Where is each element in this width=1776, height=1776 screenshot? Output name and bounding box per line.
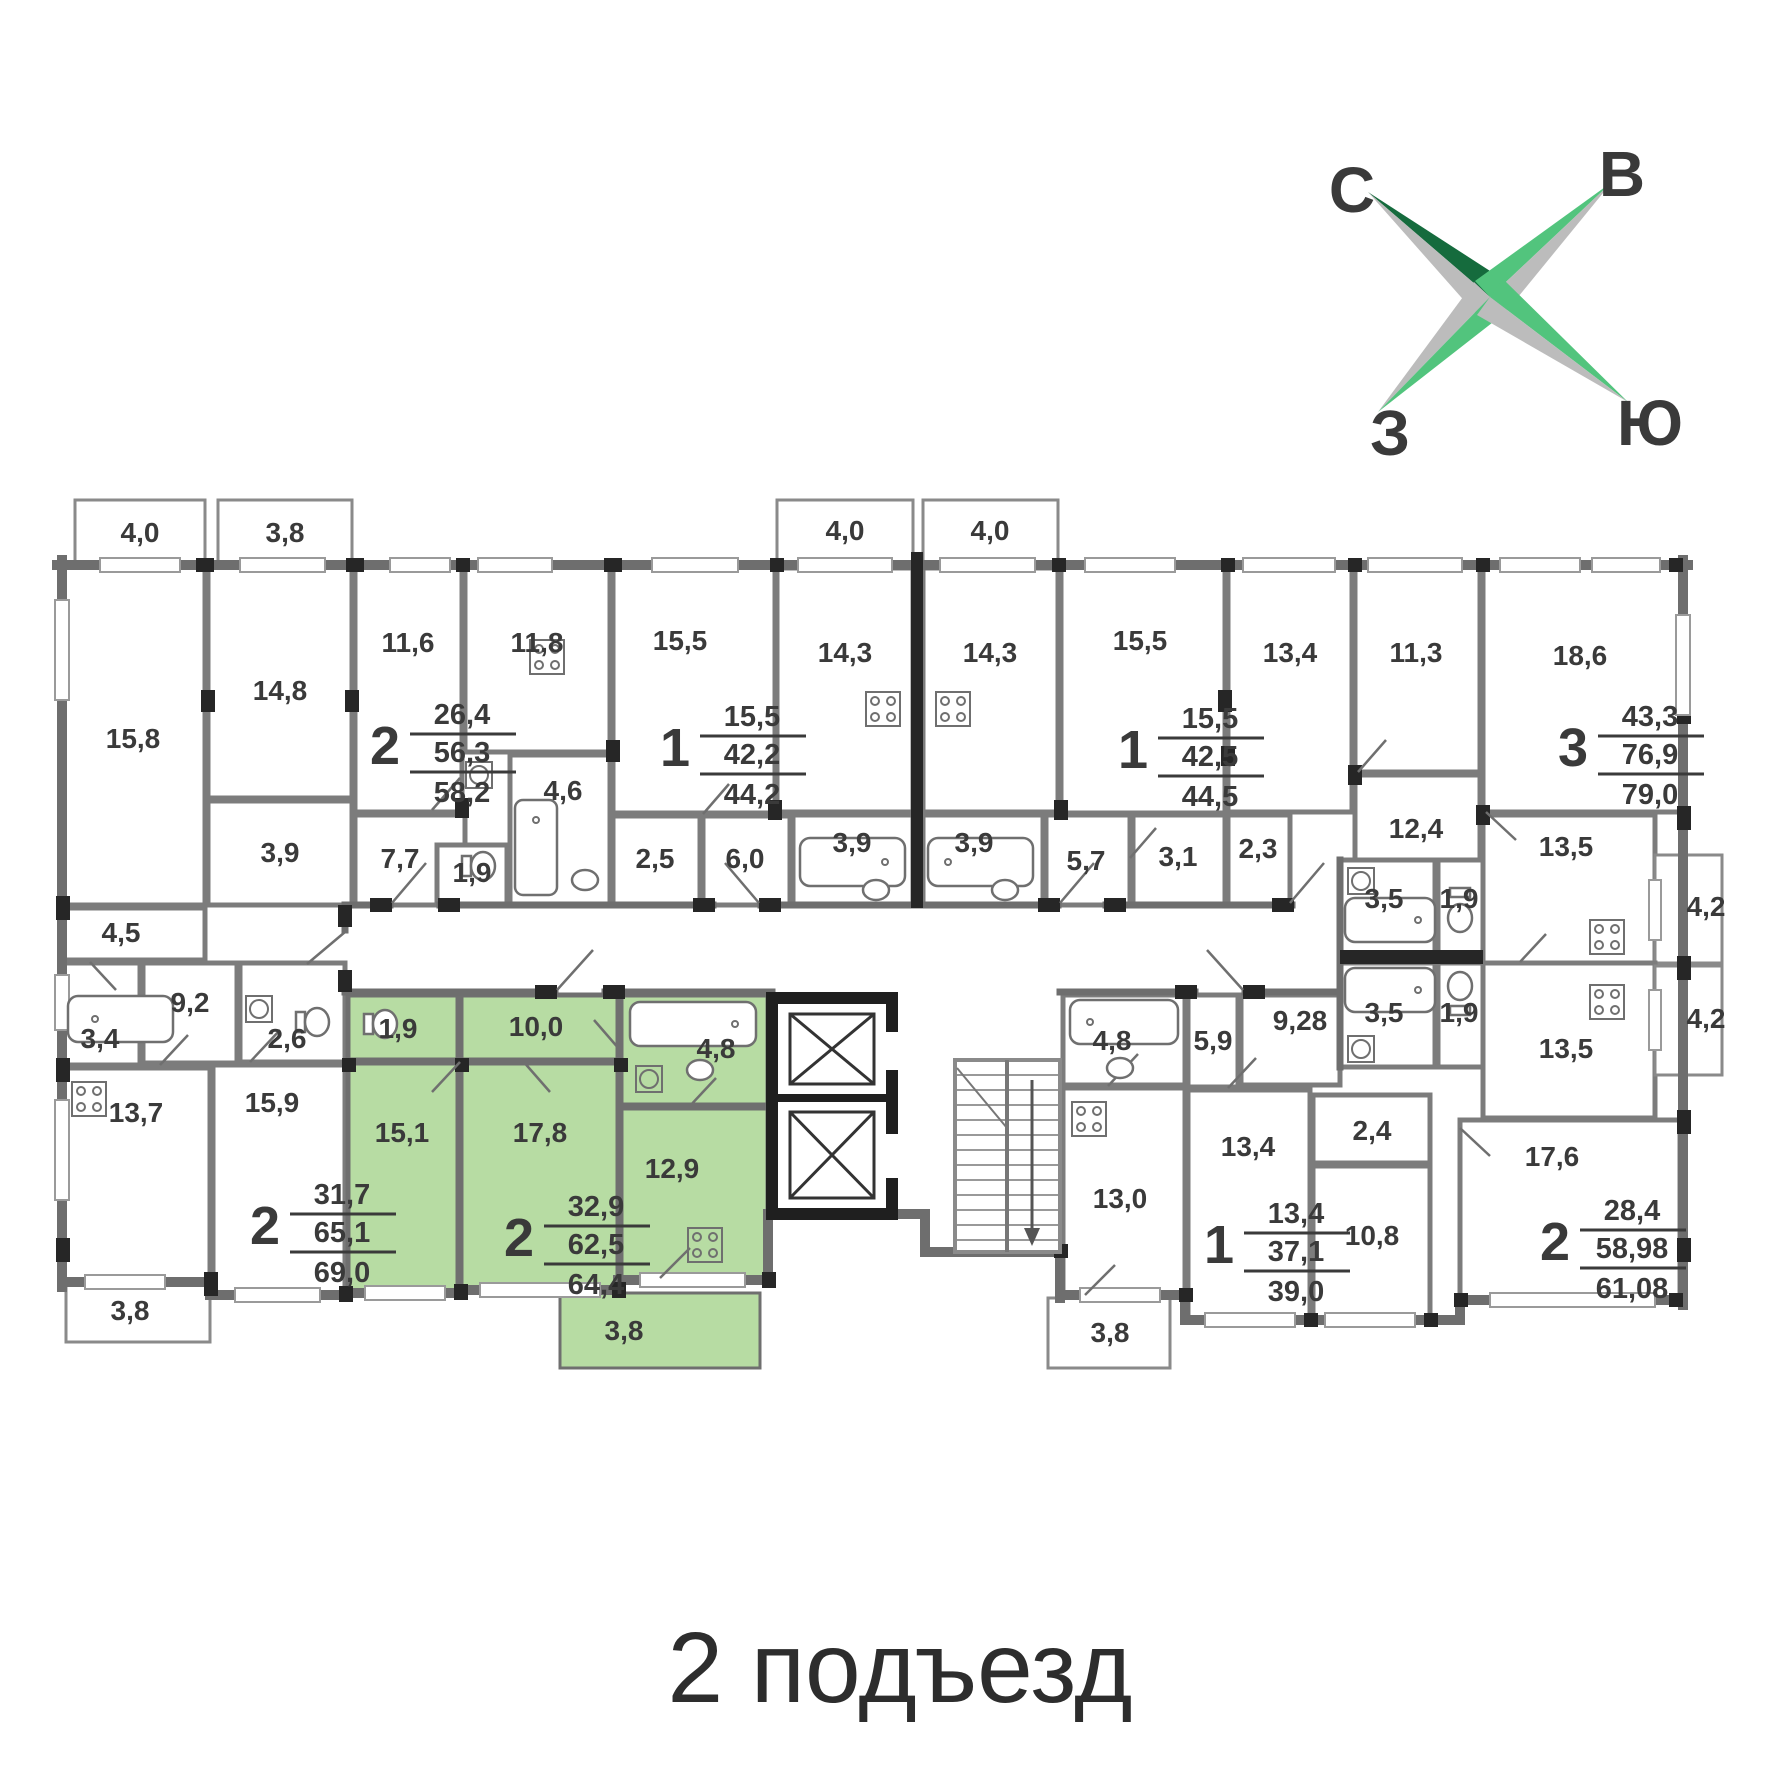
room-area-label: 2,6 bbox=[268, 1023, 307, 1054]
room-area-label: 5,7 bbox=[1067, 845, 1106, 876]
rooms-layer bbox=[62, 500, 1722, 1368]
elevator-block bbox=[772, 998, 900, 1214]
room-area-label: 15,5 bbox=[653, 625, 708, 656]
room-area-label: 17,6 bbox=[1525, 1141, 1580, 1172]
room-area-label: 4,2 bbox=[1687, 1003, 1726, 1034]
apartment-total-area-with-balcony: 61,08 bbox=[1596, 1273, 1669, 1305]
apartment-rooms-count: 1 bbox=[660, 718, 690, 778]
plan-title: 2 подъезд bbox=[667, 1612, 1132, 1724]
room-area-label: 13,5 bbox=[1539, 831, 1594, 862]
elevator-shaft-icon bbox=[790, 1014, 874, 1084]
room-area-label: 9,28 bbox=[1273, 1005, 1328, 1036]
apartment-total-area-with-balcony: 69,0 bbox=[314, 1257, 370, 1289]
room-area-label: 3,9 bbox=[955, 827, 994, 858]
room-area-label: 4,2 bbox=[1687, 891, 1726, 922]
room-area-label: 1,9 bbox=[379, 1013, 418, 1044]
room-area-label: 1,9 bbox=[1440, 883, 1479, 914]
sink-icon bbox=[863, 880, 889, 900]
compass-arm-west bbox=[1378, 282, 1490, 412]
sink-icon bbox=[1107, 1058, 1133, 1078]
room-area-label: 4,0 bbox=[826, 515, 865, 546]
room-area-label: 7,7 bbox=[381, 843, 420, 874]
room-area-label: 6,0 bbox=[726, 843, 765, 874]
apartment-total-area: 56,3 bbox=[434, 737, 490, 769]
compass-east-label: В bbox=[1599, 138, 1645, 210]
room-area-label: 17,8 bbox=[513, 1117, 568, 1148]
room-area-label: 3,8 bbox=[1091, 1317, 1130, 1348]
room-area-label: 15,8 bbox=[106, 723, 161, 754]
room-area-label: 15,1 bbox=[375, 1117, 430, 1148]
room-area-label: 10,0 bbox=[509, 1011, 564, 1042]
apartment-rooms-count: 2 bbox=[250, 1196, 280, 1256]
room-area-label: 4,0 bbox=[971, 515, 1010, 546]
room-area-label: 10,8 bbox=[1345, 1220, 1400, 1251]
room-area-label: 14,8 bbox=[253, 675, 308, 706]
bathtub-icon bbox=[630, 1002, 756, 1046]
elevator-shaft-icon bbox=[790, 1112, 874, 1198]
apartment-total-area: 42,2 bbox=[724, 739, 780, 771]
room-area-label: 1,9 bbox=[453, 857, 492, 888]
room-area-label: 15,9 bbox=[245, 1087, 300, 1118]
apartment-living-area: 31,7 bbox=[314, 1179, 370, 1211]
apartment-rooms-count: 1 bbox=[1204, 1215, 1234, 1275]
apartment-total-area-with-balcony: 39,0 bbox=[1268, 1276, 1324, 1308]
room-area-label: 3,1 bbox=[1159, 841, 1198, 872]
room-area-label: 2,4 bbox=[1353, 1115, 1392, 1146]
room-area-label: 3,8 bbox=[605, 1315, 644, 1346]
compass-north-label: С bbox=[1329, 154, 1375, 226]
room-area-label: 2,3 bbox=[1239, 833, 1278, 864]
apartment-total-area: 42,5 bbox=[1182, 741, 1238, 773]
bathtub-icon bbox=[515, 800, 557, 895]
floor-plan-page: 4,03,815,814,83,911,611,87,71,94,615,52,… bbox=[0, 0, 1776, 1776]
apartment-living-area: 32,9 bbox=[568, 1191, 624, 1223]
apartment-living-area: 13,4 bbox=[1268, 1198, 1324, 1230]
room-area-label: 12,4 bbox=[1389, 813, 1444, 844]
room-area-label: 11,8 bbox=[511, 627, 564, 658]
room-area-label: 4,8 bbox=[1093, 1025, 1132, 1056]
room-area-label: 3,8 bbox=[266, 517, 305, 548]
apartment-total-area: 76,9 bbox=[1622, 739, 1678, 771]
room-area-label: 18,6 bbox=[1553, 640, 1608, 671]
apartment-total-area-with-balcony: 79,0 bbox=[1622, 779, 1678, 811]
apartment-rooms-count: 2 bbox=[1540, 1212, 1570, 1272]
apartment-total-area: 37,1 bbox=[1268, 1236, 1324, 1268]
apartment-living-area: 15,5 bbox=[724, 701, 780, 733]
room-area-label: 4,6 bbox=[544, 775, 583, 806]
apartment-total-area: 65,1 bbox=[314, 1217, 370, 1249]
room-area-label: 13,0 bbox=[1093, 1183, 1148, 1214]
room-area-label: 4,5 bbox=[102, 917, 141, 948]
room-area-label: 9,2 bbox=[171, 987, 210, 1018]
apartment-living-area: 26,4 bbox=[434, 699, 490, 731]
room-area-label: 3,4 bbox=[81, 1023, 120, 1054]
room-area-label: 14,3 bbox=[963, 637, 1018, 668]
apartment-rooms-count: 2 bbox=[370, 716, 400, 776]
sink-icon bbox=[992, 880, 1018, 900]
compass-arm-south bbox=[1490, 279, 1628, 402]
room-area-label: 11,3 bbox=[1390, 637, 1443, 668]
room-area-label: 4,0 bbox=[121, 517, 160, 548]
room-area-label: 3,5 bbox=[1365, 997, 1404, 1028]
apartment-total-area-with-balcony: 44,2 bbox=[724, 779, 780, 811]
room-area-label: 4,8 bbox=[697, 1033, 736, 1064]
room-area-label: 13,5 bbox=[1539, 1033, 1594, 1064]
compass-arm-east bbox=[1475, 182, 1612, 297]
room-area-label: 15,5 bbox=[1113, 625, 1168, 656]
apartment-rooms-count: 2 bbox=[504, 1208, 534, 1268]
room-area-label: 5,9 bbox=[1194, 1025, 1233, 1056]
apartment-living-area: 43,3 bbox=[1622, 701, 1678, 733]
apartment-total-area: 58,98 bbox=[1596, 1233, 1669, 1265]
apartment-rooms-count: 1 bbox=[1118, 720, 1148, 780]
floor-plan: 4,03,815,814,83,911,611,87,71,94,615,52,… bbox=[0, 0, 1776, 1776]
compass-west-label: З bbox=[1370, 397, 1410, 469]
apartment-total-area-with-balcony: 44,5 bbox=[1182, 781, 1238, 813]
stairs bbox=[955, 1060, 1060, 1252]
room-area-label: 3,9 bbox=[833, 827, 872, 858]
room-area-label: 3,9 bbox=[261, 837, 300, 868]
apartment-living-area: 28,4 bbox=[1604, 1195, 1660, 1227]
room-area-label: 14,3 bbox=[818, 637, 873, 668]
compass-rose: С В З Ю bbox=[1329, 138, 1683, 469]
room-area-label: 11,6 bbox=[382, 627, 435, 658]
room-area-label: 13,4 bbox=[1263, 637, 1318, 668]
room-area-label: 12,9 bbox=[645, 1153, 700, 1184]
room-area-label: 3,5 bbox=[1365, 883, 1404, 914]
room-area-label: 13,7 bbox=[109, 1097, 164, 1128]
room-area-label: 1,9 bbox=[1440, 997, 1479, 1028]
apartment-total-area-with-balcony: 58,2 bbox=[434, 777, 490, 809]
apartment-living-area: 15,5 bbox=[1182, 703, 1238, 735]
apartment-total-area: 62,5 bbox=[568, 1229, 624, 1261]
sink-icon bbox=[572, 870, 598, 890]
compass-south-label: Ю bbox=[1617, 387, 1683, 459]
room-area-label: 13,4 bbox=[1221, 1131, 1276, 1162]
apartment-total-area-with-balcony: 64,4 bbox=[568, 1269, 624, 1301]
room-area-label: 2,5 bbox=[636, 843, 675, 874]
apartment-rooms-count: 3 bbox=[1558, 718, 1588, 778]
room-area-label: 3,8 bbox=[111, 1295, 150, 1326]
